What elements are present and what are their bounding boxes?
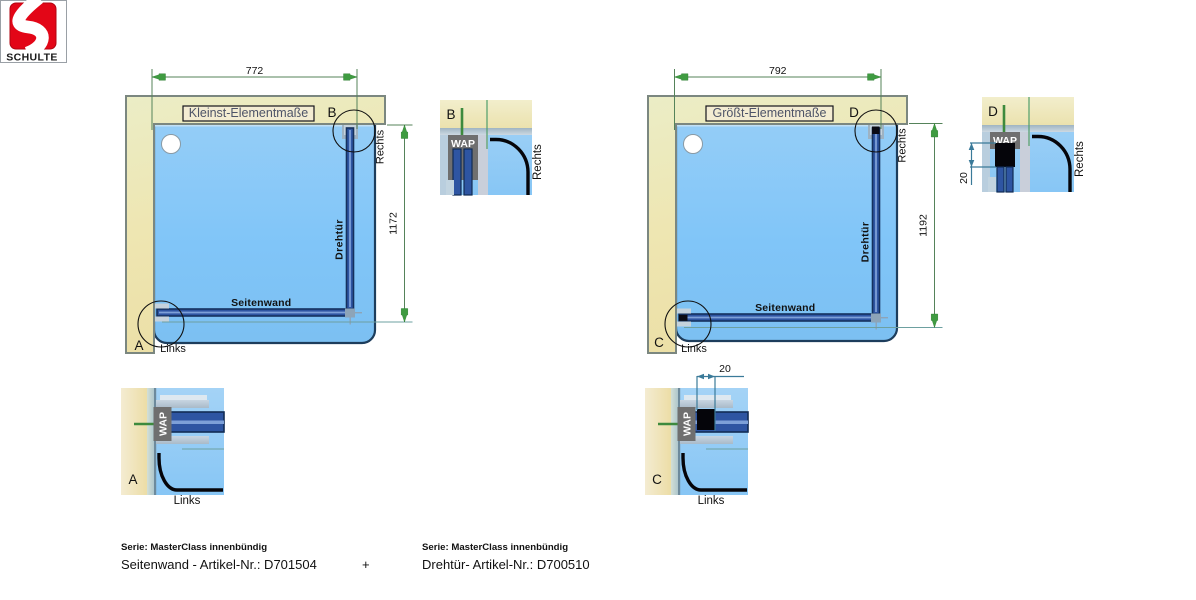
svg-text:C: C	[654, 335, 664, 350]
svg-text:Rechts: Rechts	[1074, 141, 1086, 177]
svg-text:D: D	[988, 104, 998, 119]
svg-text:Drehtür- Artikel-Nr.: D700510: Drehtür- Artikel-Nr.: D700510	[422, 557, 590, 572]
svg-text:20: 20	[958, 172, 970, 184]
svg-text:Rechts: Rechts	[375, 129, 387, 164]
svg-text:WAP: WAP	[158, 412, 170, 436]
svg-text:Seitenwand: Seitenwand	[755, 302, 815, 314]
svg-text:WAP: WAP	[451, 138, 475, 150]
svg-text:1192: 1192	[918, 214, 930, 237]
svg-text:Seitenwand - Artikel-Nr.: D701: Seitenwand - Artikel-Nr.: D701504	[121, 557, 317, 572]
svg-text:Rechts: Rechts	[897, 128, 909, 163]
svg-text:Links: Links	[174, 495, 201, 507]
svg-text:D: D	[849, 105, 859, 120]
svg-text:Rechts: Rechts	[532, 144, 544, 180]
svg-text:Größt-Elementmaße: Größt-Elementmaße	[713, 106, 827, 120]
svg-text:WAP: WAP	[682, 412, 694, 436]
svg-text:Links: Links	[681, 343, 707, 355]
svg-text:SCHULTE: SCHULTE	[6, 52, 58, 64]
svg-text:Drehtür: Drehtür	[334, 219, 346, 260]
svg-text:Links: Links	[160, 343, 186, 355]
svg-text:+: +	[362, 557, 370, 572]
svg-text:Links: Links	[698, 495, 725, 507]
svg-text:Seitenwand: Seitenwand	[231, 297, 291, 309]
svg-text:Serie: MasterClass innenbündig: Serie: MasterClass innenbündig	[121, 542, 267, 553]
svg-text:Kleinst-Elementmaße: Kleinst-Elementmaße	[189, 106, 309, 120]
svg-text:B: B	[446, 107, 455, 122]
svg-text:A: A	[134, 338, 143, 353]
svg-text:1172: 1172	[388, 212, 400, 235]
svg-text:20: 20	[719, 363, 731, 375]
svg-text:792: 792	[769, 65, 787, 77]
svg-text:A: A	[128, 472, 137, 487]
svg-text:Serie: MasterClass innenbündig: Serie: MasterClass innenbündig	[422, 542, 568, 553]
svg-text:772: 772	[246, 65, 264, 77]
svg-text:B: B	[327, 105, 336, 120]
svg-text:Drehtür: Drehtür	[860, 222, 872, 263]
svg-text:C: C	[652, 472, 662, 487]
